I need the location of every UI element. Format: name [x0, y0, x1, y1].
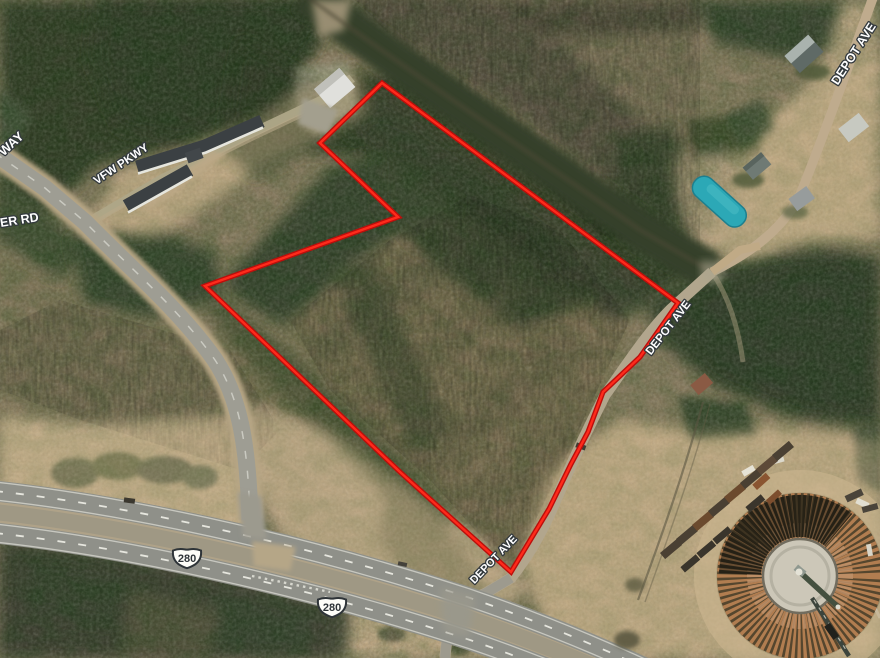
- svg-text:280: 280: [178, 553, 196, 565]
- svg-text:280: 280: [323, 602, 341, 614]
